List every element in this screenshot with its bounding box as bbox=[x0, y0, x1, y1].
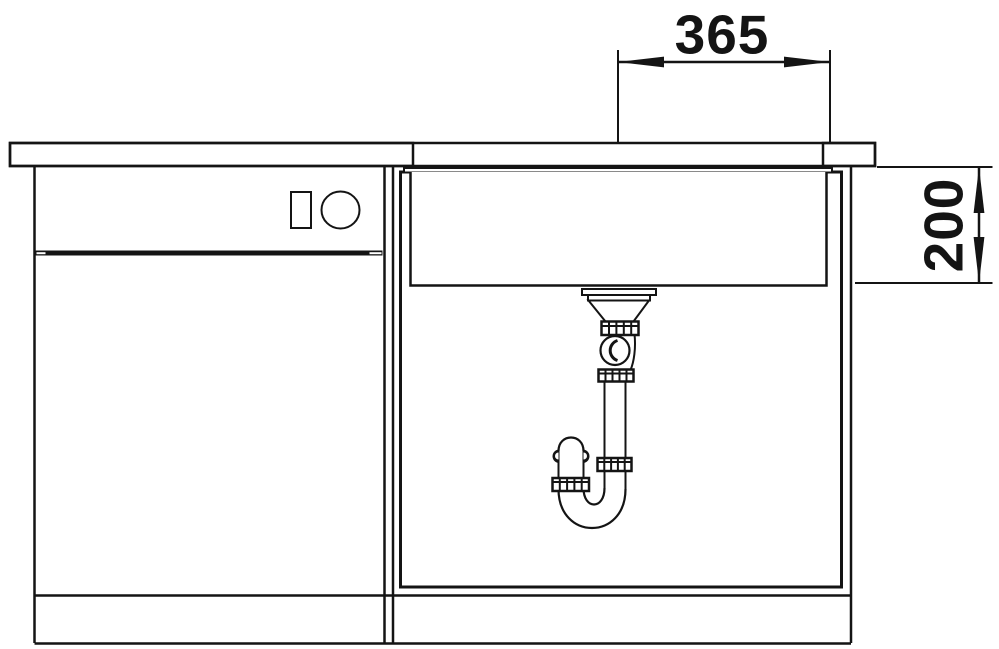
nut-body bbox=[599, 370, 634, 382]
sink-installation-diagram: 365 200 bbox=[0, 0, 999, 649]
arrowhead-up bbox=[974, 167, 985, 213]
door-gap-notch-left bbox=[37, 252, 46, 254]
control-knob bbox=[322, 192, 360, 229]
compression-nut-4 bbox=[553, 478, 590, 491]
sink-rim-flange bbox=[404, 168, 832, 173]
elbow-right-edge bbox=[631, 334, 636, 370]
drain-funnel bbox=[589, 301, 650, 322]
dishwasher-cabinet bbox=[35, 166, 385, 643]
dimension-label-depth: 200 bbox=[913, 178, 975, 273]
compression-nut-1 bbox=[602, 322, 639, 336]
dimension-depth: 200 bbox=[855, 167, 993, 283]
compression-nut-3 bbox=[598, 458, 632, 471]
nut-body bbox=[598, 458, 632, 471]
arrowhead-left bbox=[618, 57, 664, 68]
trap-tube-dome-cap bbox=[559, 438, 584, 452]
control-panel-display bbox=[291, 192, 311, 228]
compression-nut-2 bbox=[599, 370, 634, 382]
nut-body bbox=[602, 322, 639, 336]
sink-bowl bbox=[404, 168, 832, 286]
countertop-surface bbox=[10, 143, 875, 166]
sink-bowl-body bbox=[411, 172, 827, 286]
dimension-label-width: 365 bbox=[675, 4, 770, 66]
trap-u-bend-outer bbox=[559, 489, 626, 528]
drain-assembly bbox=[553, 289, 657, 528]
countertop bbox=[10, 143, 875, 166]
door-gap-notch-right bbox=[370, 252, 382, 254]
nut-body bbox=[553, 478, 590, 491]
arrowhead-right bbox=[784, 57, 830, 68]
dimension-width: 365 bbox=[618, 4, 830, 144]
door-gap-bar bbox=[36, 251, 383, 256]
arrowhead-down bbox=[974, 237, 985, 283]
plinth bbox=[35, 596, 852, 644]
